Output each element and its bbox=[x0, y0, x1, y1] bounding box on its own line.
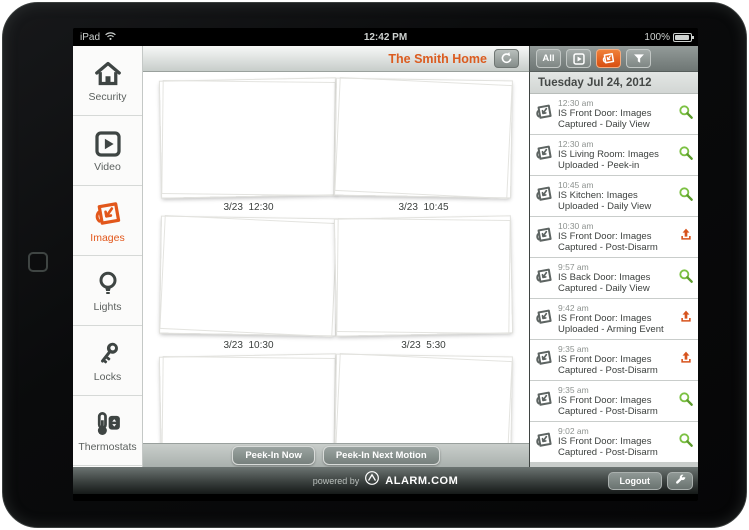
thermostat-icon bbox=[93, 409, 123, 439]
images-event-icon bbox=[534, 266, 556, 291]
main-header: The Smith Home bbox=[143, 46, 529, 72]
event-time: 10:30 am bbox=[558, 221, 677, 231]
event-row[interactable]: 12:30 amIS Living Room: Images Uploaded … bbox=[530, 135, 698, 175]
settings-wrench-button[interactable] bbox=[667, 472, 693, 490]
event-time: 9:35 am bbox=[558, 344, 677, 354]
status-bar: iPad 12:42 PM 100% bbox=[73, 28, 698, 46]
sidebar-item-locks[interactable]: Locks bbox=[73, 326, 142, 396]
images-event-icon bbox=[534, 307, 556, 332]
camera-snapshot-living-room[interactable] bbox=[335, 216, 512, 335]
snapshot-caption: 3/23 5:30 bbox=[336, 338, 511, 354]
event-description: IS Front Door: Images Captured - Post-Di… bbox=[558, 395, 677, 417]
sidebar-item-lights[interactable]: Lights bbox=[73, 256, 142, 326]
upload-icon[interactable] bbox=[678, 227, 694, 248]
zoom-icon[interactable] bbox=[678, 104, 694, 125]
upload-icon[interactable] bbox=[678, 309, 694, 330]
event-list: 12:30 amIS Front Door: Images Captured -… bbox=[530, 94, 698, 462]
brand-label: ALARM.COM bbox=[385, 475, 458, 487]
event-row[interactable]: 9:57 amIS Back Door: Images Captured - D… bbox=[530, 258, 698, 298]
upload-icon[interactable] bbox=[678, 350, 694, 371]
images-event-icon bbox=[534, 430, 556, 455]
filter-bar: All bbox=[529, 46, 698, 72]
sidebar-item-label: Thermostats bbox=[78, 441, 136, 453]
sidebar-item-video[interactable]: Video bbox=[73, 116, 142, 186]
sidebar: Security Video Images Lights Locks bbox=[73, 46, 143, 467]
peek-in-now-button[interactable]: Peek-In Now bbox=[232, 446, 315, 465]
ipad-screen: iPad 12:42 PM 100% Security Video bbox=[73, 28, 698, 501]
home-name-label: The Smith Home bbox=[388, 52, 487, 66]
sidebar-item-label: Locks bbox=[94, 371, 121, 383]
battery-percent: 100% bbox=[644, 32, 670, 43]
camera-snapshot-front-door[interactable] bbox=[160, 78, 337, 197]
sidebar-item-label: Lights bbox=[93, 301, 121, 313]
ipad-home-button[interactable] bbox=[28, 252, 48, 272]
event-description: IS Front Door: Images Captured - Post-Di… bbox=[558, 354, 677, 376]
event-description: IS Back Door: Images Captured - Daily Vi… bbox=[558, 272, 677, 294]
event-description: IS Living Room: Images Uploaded - Peek-i… bbox=[558, 149, 677, 171]
images-event-icon bbox=[534, 143, 556, 168]
key-icon bbox=[93, 339, 123, 369]
event-description: IS Kitchen: Images Uploaded - Daily View bbox=[558, 190, 677, 212]
images-event-icon bbox=[534, 225, 556, 250]
event-description: IS Front Door: Images Captured - Daily V… bbox=[558, 108, 677, 130]
snapshot-caption: 3/23 10:45 bbox=[336, 200, 511, 216]
zoom-icon[interactable] bbox=[678, 145, 694, 166]
powered-by-label: powered by bbox=[313, 476, 360, 486]
ipad-bezel: iPad 12:42 PM 100% Security Video bbox=[2, 2, 747, 528]
camera-snapshot-kitchen[interactable] bbox=[335, 79, 512, 198]
zoom-icon[interactable] bbox=[678, 391, 694, 412]
filter-images-button[interactable] bbox=[596, 49, 621, 68]
zoom-icon[interactable] bbox=[678, 186, 694, 207]
battery-icon bbox=[673, 33, 692, 42]
event-history-panel: Tuesday Jul 24, 2012 12:30 amIS Front Do… bbox=[529, 72, 698, 467]
peek-in-next-motion-button[interactable]: Peek-In Next Motion bbox=[323, 446, 440, 465]
zoom-icon[interactable] bbox=[678, 432, 694, 453]
video-icon bbox=[93, 129, 123, 159]
snapshot-caption: 3/23 10:30 bbox=[161, 338, 336, 354]
event-time: 12:30 am bbox=[558, 98, 677, 108]
images-event-icon bbox=[534, 184, 556, 209]
filter-funnel-button[interactable] bbox=[626, 49, 651, 68]
event-row[interactable]: 9:02 amIS Front Door: Images Captured - … bbox=[530, 422, 698, 462]
event-time: 9:42 am bbox=[558, 303, 677, 313]
footer-bar: powered by ALARM.COM Logout bbox=[73, 467, 698, 494]
image-gallery: 3/23 12:30 3/23 10:45 3/23 10:30 bbox=[143, 72, 529, 467]
event-time: 9:02 am bbox=[558, 426, 677, 436]
filter-video-button[interactable] bbox=[566, 49, 591, 68]
peek-toolbar: Peek-In Now Peek-In Next Motion bbox=[143, 443, 529, 467]
sidebar-item-label: Video bbox=[94, 161, 121, 173]
event-description: IS Front Door: Images Captured - Post-Di… bbox=[558, 436, 677, 458]
images-event-icon bbox=[534, 102, 556, 127]
logout-button[interactable]: Logout bbox=[608, 472, 663, 490]
event-row[interactable]: 10:45 amIS Kitchen: Images Uploaded - Da… bbox=[530, 176, 698, 216]
event-date-header: Tuesday Jul 24, 2012 bbox=[530, 72, 698, 94]
sidebar-item-images[interactable]: Images bbox=[73, 186, 142, 256]
zoom-icon[interactable] bbox=[678, 268, 694, 289]
images-icon bbox=[92, 198, 124, 230]
sidebar-item-label: Security bbox=[89, 91, 127, 103]
snapshot-caption: 3/23 12:30 bbox=[161, 200, 336, 216]
event-time: 12:30 am bbox=[558, 139, 677, 149]
sidebar-item-label: Images bbox=[90, 232, 124, 244]
event-description: IS Front Door: Images Captured - Post-Di… bbox=[558, 231, 677, 253]
camera-snapshot-dark-room[interactable] bbox=[160, 217, 337, 336]
filter-all-button[interactable]: All bbox=[536, 49, 561, 68]
event-row[interactable]: 9:35 amIS Front Door: Images Captured - … bbox=[530, 381, 698, 421]
home-icon bbox=[93, 59, 123, 89]
images-event-icon bbox=[534, 348, 556, 373]
refresh-button[interactable] bbox=[494, 49, 519, 68]
event-row[interactable]: 12:30 amIS Front Door: Images Captured -… bbox=[530, 94, 698, 134]
event-time: 9:57 am bbox=[558, 262, 677, 272]
event-time: 9:35 am bbox=[558, 385, 677, 395]
alarm-com-logo-icon bbox=[364, 470, 380, 491]
sidebar-item-thermostats[interactable]: Thermostats bbox=[73, 396, 142, 466]
event-description: IS Front Door: Images Uploaded - Arming … bbox=[558, 313, 677, 335]
screenshot-root: iPad 12:42 PM 100% Security Video bbox=[0, 0, 749, 530]
event-time: 10:45 am bbox=[558, 180, 677, 190]
images-event-icon bbox=[534, 389, 556, 414]
clock: 12:42 PM bbox=[73, 32, 698, 43]
bulb-icon bbox=[93, 269, 123, 299]
event-row[interactable]: 9:35 amIS Front Door: Images Captured - … bbox=[530, 340, 698, 380]
sidebar-item-security[interactable]: Security bbox=[73, 46, 142, 116]
event-row[interactable]: 9:42 amIS Front Door: Images Uploaded - … bbox=[530, 299, 698, 339]
event-row[interactable]: 10:30 amIS Front Door: Images Captured -… bbox=[530, 217, 698, 257]
